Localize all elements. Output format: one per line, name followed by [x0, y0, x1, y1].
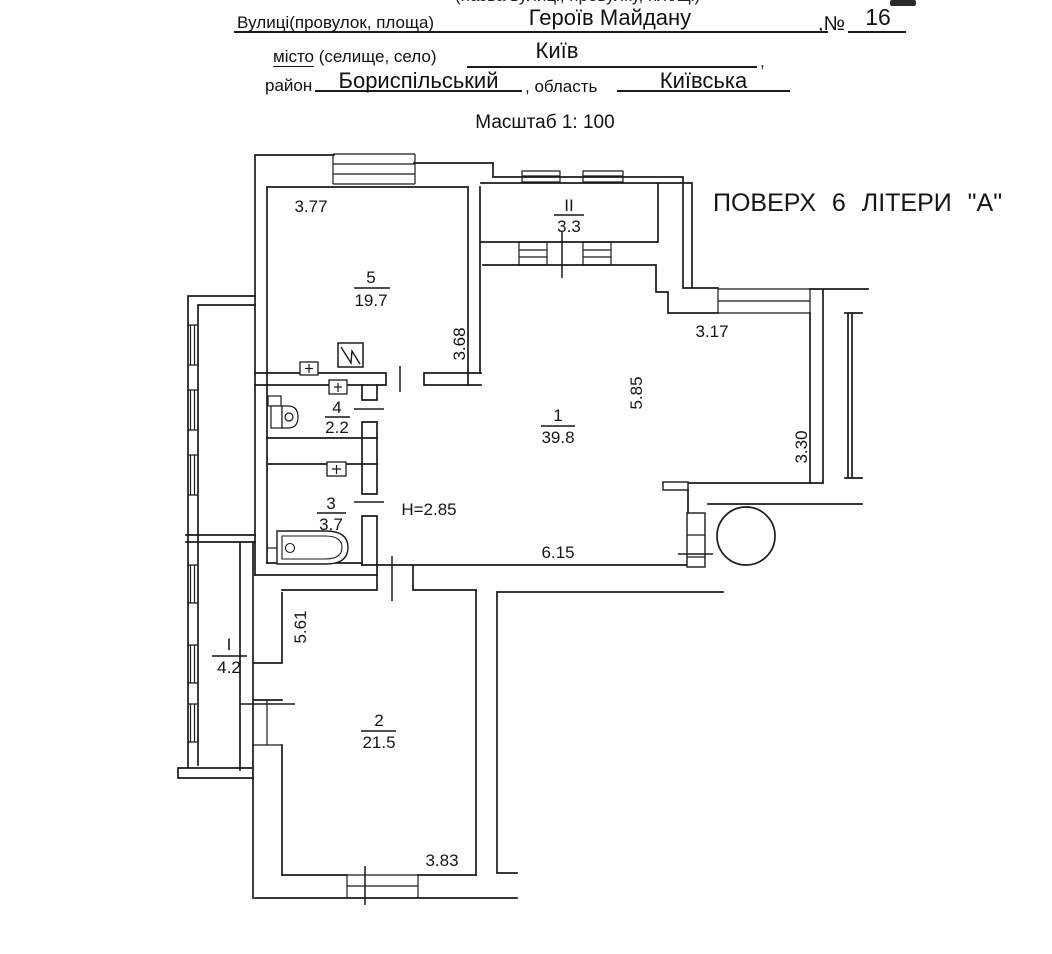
- window-room2-bottom: [347, 875, 418, 898]
- dim-room5-width: 3.77: [294, 197, 327, 216]
- floor-title: ПОВЕРХ 6 ЛІТЕРИ "А": [713, 189, 1002, 217]
- window-room2-west: [253, 700, 282, 745]
- room-label-1: 1 39.8: [541, 406, 575, 447]
- room-label-5: 5 19.7: [354, 268, 390, 310]
- technical-passport-floor-plan-page: (назва вулиці, провулку, площі) Вулиці(п…: [0, 0, 1052, 954]
- room-area: 3.7: [319, 515, 343, 534]
- room-number: 2: [374, 711, 383, 730]
- window-room1-right: [718, 289, 810, 313]
- electric-panel-icon: [338, 343, 363, 367]
- bathtub-icon: [267, 531, 348, 564]
- washbasin-icon: [268, 396, 298, 428]
- room-number: 4: [332, 398, 341, 417]
- dim-room2-width: 3.83: [425, 851, 458, 870]
- room-label-3: 3 3.7: [317, 494, 346, 534]
- column-circle: [717, 507, 775, 565]
- room-number: 3: [326, 494, 335, 513]
- room-area: 3.3: [557, 217, 581, 236]
- room-label-balcony1: I 4.2: [212, 635, 247, 677]
- dim-room2-height: 5.61: [291, 610, 310, 643]
- dim-room1-top: 3.17: [695, 322, 728, 341]
- room-area: 2.2: [325, 418, 349, 437]
- room-number: 1: [553, 406, 562, 425]
- room-area: 4.2: [217, 658, 241, 677]
- window-room5-top: [333, 154, 415, 184]
- fixtures: [267, 343, 775, 567]
- room-area: 19.7: [354, 291, 387, 310]
- vent-shaft-icon: [327, 462, 346, 476]
- vent-shaft-icon: [300, 362, 318, 375]
- ceiling-height-note: H=2.85: [401, 500, 456, 519]
- room-area: 39.8: [541, 428, 574, 447]
- room-area: 21.5: [362, 733, 395, 752]
- railing-balcony2: [519, 242, 611, 265]
- floor-plan-drawing: ПОВЕРХ 6 ЛІТЕРИ "А" 5 19.7 II 3.3 1 39.8…: [0, 0, 1052, 954]
- dim-room5-height: 3.68: [450, 327, 469, 360]
- room-label-4: 4 2.2: [325, 398, 350, 437]
- dim-room1-bottom: 6.15: [541, 543, 574, 562]
- room-number: 5: [366, 268, 375, 287]
- room-label-balcony2: II 3.3: [554, 196, 584, 236]
- dim-room1-right: 5.85: [627, 376, 646, 409]
- dim-room1-far-right: 3.30: [792, 430, 811, 463]
- room-number: II: [564, 196, 573, 215]
- window-left-strip: [188, 325, 198, 742]
- room-label-2: 2 21.5: [361, 711, 396, 752]
- vent-shaft-icon: [329, 380, 347, 394]
- room-number: I: [227, 635, 232, 654]
